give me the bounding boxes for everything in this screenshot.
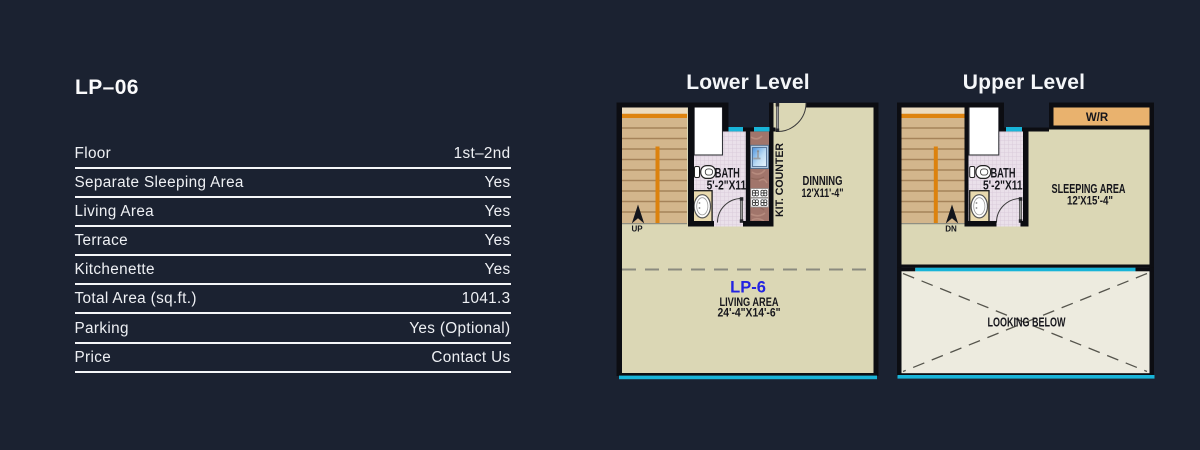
svg-text:W/R: W/R — [1086, 112, 1109, 124]
svg-text:KIT. COUNTER: KIT. COUNTER — [774, 143, 786, 217]
svg-text:UP: UP — [631, 225, 643, 234]
svg-text:5'-2"X11': 5'-2"X11' — [707, 178, 749, 193]
svg-text:24'-4"X14'-6": 24'-4"X14'-6" — [718, 307, 781, 320]
svg-text:LP-6: LP-6 — [730, 279, 766, 297]
svg-text:DN: DN — [945, 225, 957, 234]
svg-text:LOOKING BELOW: LOOKING BELOW — [988, 315, 1067, 330]
svg-text:12'X11'-4": 12'X11'-4" — [802, 186, 844, 200]
svg-text:12'X15'-4": 12'X15'-4" — [1067, 194, 1113, 208]
